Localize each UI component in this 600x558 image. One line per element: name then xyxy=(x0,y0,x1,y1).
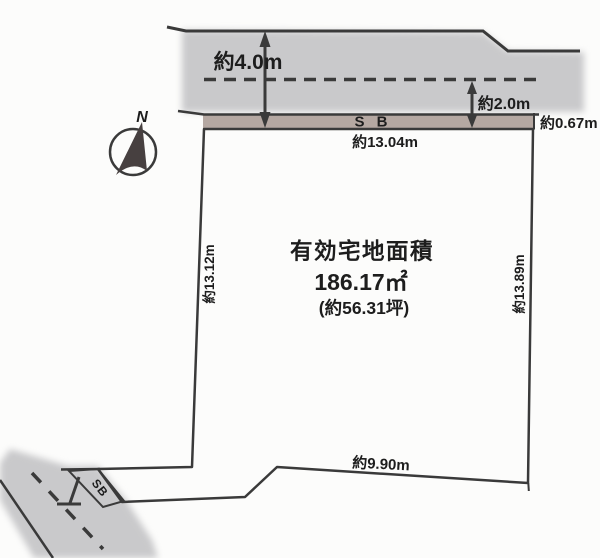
plot-area-tsubo: (約56.31坪) xyxy=(319,298,409,318)
plot-area xyxy=(98,129,533,502)
land-plot-diagram: 約4.0m 約2.0m S B 約0.67m SB N 約13.04m xyxy=(0,0,600,558)
center-to-edge-label: 約2.0m xyxy=(478,94,530,113)
plot: 約13.04m 約13.12m 約13.89m 約9.90m 有効宅地面積 18… xyxy=(61,129,533,502)
plot-area-sqm: 186.17㎡ xyxy=(314,269,407,295)
top-road: 約4.0m 約2.0m S B 約0.67m xyxy=(167,27,598,132)
corner-overshoot xyxy=(528,483,529,491)
edge-right-label: 約13.89m xyxy=(511,254,527,313)
plot-title: 有効宅地面積 xyxy=(290,238,434,264)
setback-depth-label: 約0.67m xyxy=(540,114,598,132)
bottom-road: SB xyxy=(0,449,158,558)
compass-north-label: N xyxy=(136,109,148,126)
edge-left-label: 約13.12m xyxy=(201,244,217,303)
edge-top-label: 約13.04m xyxy=(352,133,418,151)
frontage-line-extension xyxy=(61,469,100,470)
road-width-label: 約4.0m xyxy=(214,50,283,74)
edge-bottom-label: 約9.90m xyxy=(352,454,410,475)
plot-diagram-canvas: 約4.0m 約2.0m S B 約0.67m SB N 約13.04m xyxy=(0,0,600,558)
compass: N xyxy=(110,109,156,175)
